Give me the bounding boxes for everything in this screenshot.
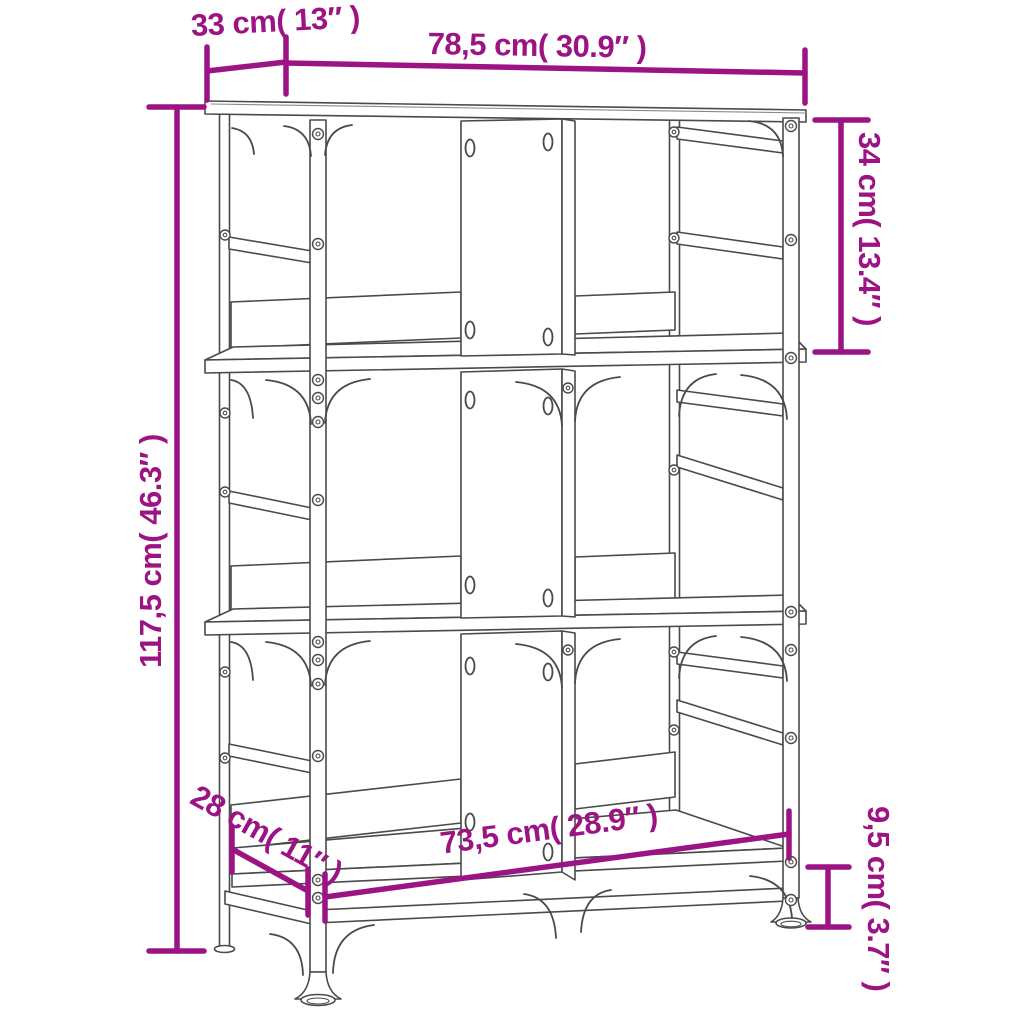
dimension-label-top-tier-height: 34 cm( 13.4″ )	[851, 132, 887, 326]
top-board	[205, 101, 806, 122]
dimension-diagram: 33 cm( 13″ ) 78,5 cm( 30.9″ ) 34 cm( 13.…	[0, 0, 1024, 1024]
dimension-label-top-width: 78,5 cm( 30.9″ )	[427, 26, 646, 66]
dimension-label-total-height: 117,5 cm( 46.3″ )	[133, 434, 169, 668]
dimension-line-ground-clearance	[808, 867, 849, 927]
right-side-slats	[677, 127, 783, 745]
dimension-line-top-depth	[207, 37, 286, 100]
dimension-label-ground-clearance: 9,5 cm( 3.7″ )	[860, 806, 896, 991]
divider-panels	[461, 119, 575, 880]
